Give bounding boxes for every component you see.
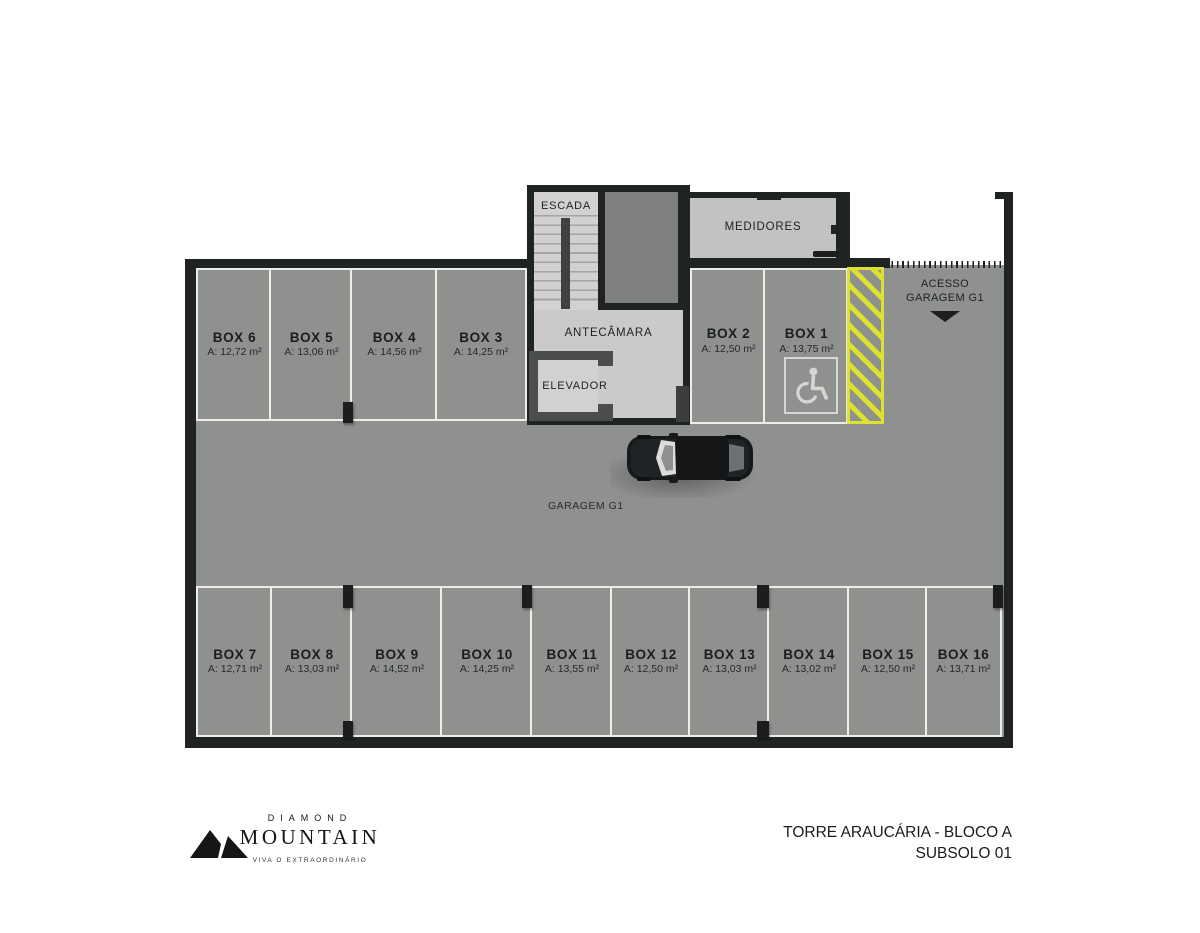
- stall-area: A: 12,72 m²: [207, 346, 261, 359]
- stair-rail: [561, 218, 570, 309]
- stall-area: A: 14,52 m²: [370, 663, 424, 676]
- stall-name: BOX 9: [375, 647, 419, 664]
- parking-stall-box12: BOX 12 A: 12,50 m²: [612, 588, 690, 735]
- stall-area: A: 13,06 m²: [284, 346, 338, 359]
- wall-right: [1004, 192, 1013, 748]
- stall-area: A: 13,71 m²: [936, 663, 990, 676]
- stall-name: BOX 6: [213, 330, 257, 347]
- sheet-title-line2: SUBSOLO 01: [700, 843, 1012, 864]
- stall-name: BOX 2: [707, 326, 751, 343]
- stall-name: BOX 13: [704, 647, 756, 664]
- stall-area: A: 13,75 m²: [779, 343, 833, 356]
- stall-name: BOX 5: [290, 330, 334, 347]
- stall-name: BOX 8: [290, 647, 334, 664]
- stall-area: A: 13,55 m²: [545, 663, 599, 676]
- column: [343, 721, 353, 738]
- shaft-block: [605, 192, 678, 303]
- floor-plan-sheet: BOX 6 A: 12,72 m² BOX 5 A: 13,06 m² BOX …: [0, 0, 1200, 933]
- garage-aisle-label: GARAGEM G1: [548, 500, 668, 512]
- meters-top-notch: [757, 192, 781, 200]
- stall-name: BOX 16: [938, 647, 990, 664]
- sheet-title-line1: TORRE ARAUCÁRIA - BLOCO A: [700, 822, 1012, 843]
- stall-area: A: 13,03 m²: [285, 663, 339, 676]
- stall-name: BOX 11: [547, 647, 598, 664]
- no-parking-hatch: [847, 267, 884, 424]
- ramp-serration: [886, 261, 1004, 268]
- stall-name: BOX 15: [862, 647, 914, 664]
- wall-bottom: [185, 737, 1013, 748]
- stall-area: A: 13,02 m²: [782, 663, 836, 676]
- access-label-line1: ACESSO: [885, 278, 1005, 290]
- stall-area: A: 14,25 m²: [460, 663, 514, 676]
- parking-stall-box4: BOX 4 A: 14,56 m²: [352, 270, 437, 419]
- elevator-label: ELEVADOR: [528, 380, 622, 392]
- parking-stall-box13: BOX 13 A: 13,03 m²: [690, 588, 769, 735]
- wall-right-cap: [995, 192, 1013, 199]
- stall-name: BOX 12: [625, 647, 677, 664]
- brand-mountain-label: MOUNTAIN: [230, 825, 390, 850]
- brand-diamond-label: DIAMOND: [240, 813, 380, 823]
- stair-room-label: ESCADA: [527, 200, 605, 212]
- accessible-parking-box: [784, 357, 838, 414]
- stall-area: A: 12,50 m²: [861, 663, 915, 676]
- parking-stall-box14: BOX 14 A: 13,02 m²: [769, 588, 849, 735]
- meters-door-leaf: [813, 251, 839, 257]
- stall-area: A: 12,50 m²: [624, 663, 678, 676]
- stall-name: BOX 14: [783, 647, 835, 664]
- parking-stall-box3: BOX 3 A: 14,25 m²: [437, 270, 525, 419]
- bottom-parking-row: BOX 7 A: 12,71 m² BOX 8 A: 13,03 m² BOX …: [196, 586, 1002, 737]
- column: [757, 585, 769, 608]
- parking-stall-box7: BOX 7 A: 12,71 m²: [198, 588, 272, 735]
- parking-stall-box9: BOX 9 A: 14,52 m²: [352, 588, 442, 735]
- brand-tagline: VIVA O EXTRAORDINÁRIO: [240, 857, 380, 864]
- parking-stall-box6: BOX 6 A: 12,72 m²: [198, 270, 271, 419]
- parking-stall-box15: BOX 15 A: 12,50 m²: [849, 588, 927, 735]
- wheelchair-icon: [791, 365, 831, 407]
- column: [343, 402, 353, 423]
- parking-stall-box8: BOX 8 A: 13,03 m²: [272, 588, 352, 735]
- column: [757, 721, 769, 738]
- column: [343, 585, 353, 608]
- car-top-view: [625, 433, 755, 483]
- stall-name: BOX 10: [461, 647, 513, 664]
- wall-left: [185, 259, 196, 748]
- stall-name: BOX 1: [785, 326, 829, 343]
- stall-name: BOX 3: [459, 330, 503, 347]
- access-label-line2: GARAGEM G1: [885, 292, 1005, 304]
- parking-stall-box10: BOX 10 A: 14,25 m²: [442, 588, 532, 735]
- top-parking-row: BOX 6 A: 12,72 m² BOX 5 A: 13,06 m² BOX …: [196, 268, 527, 421]
- stall-name: BOX 7: [213, 647, 257, 664]
- column: [993, 585, 1003, 608]
- stall-area: A: 12,71 m²: [208, 663, 262, 676]
- column: [676, 386, 689, 422]
- stall-name: BOX 4: [373, 330, 417, 347]
- parking-stall-box5: BOX 5 A: 13,06 m²: [271, 270, 352, 419]
- parking-stall-box11: BOX 11 A: 13,55 m²: [532, 588, 612, 735]
- antechamber-label: ANTECÂMARA: [527, 327, 690, 339]
- parking-stall-box16: BOX 16 A: 13,71 m²: [927, 588, 1000, 735]
- stall-area: A: 14,56 m²: [367, 346, 421, 359]
- access-arrow-icon: [930, 311, 960, 322]
- meters-room-label: MEDIDORES: [683, 221, 843, 233]
- stall-area: A: 12,50 m²: [701, 343, 755, 356]
- column: [522, 585, 532, 608]
- stall-area: A: 14,25 m²: [454, 346, 508, 359]
- stall-area: A: 13,03 m²: [702, 663, 756, 676]
